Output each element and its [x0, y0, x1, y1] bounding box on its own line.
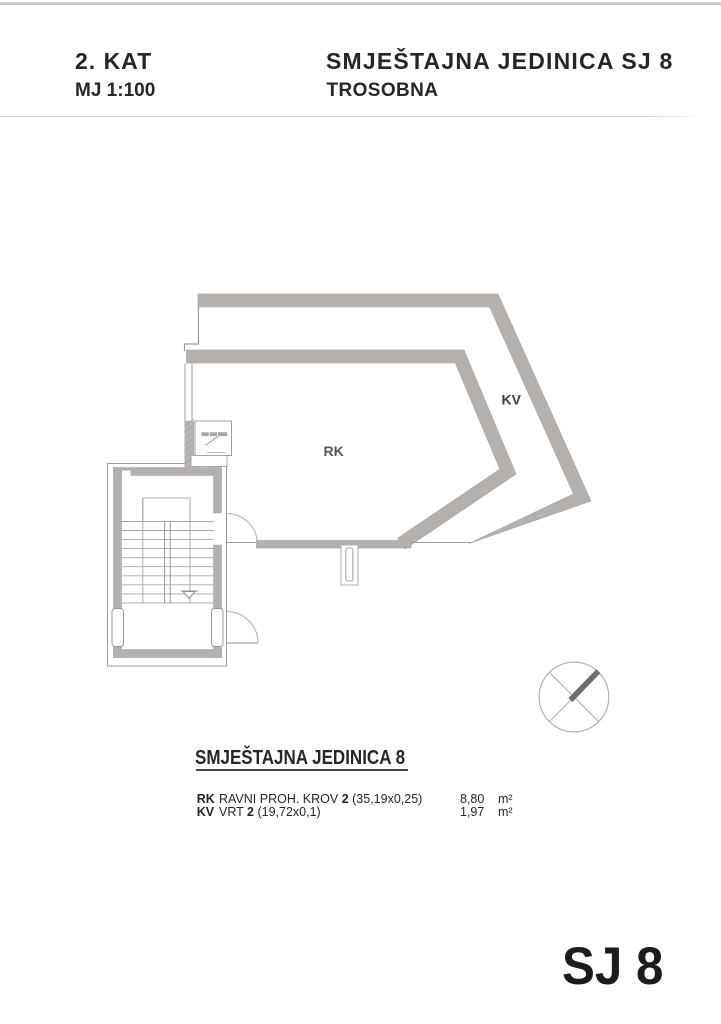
svg-text:RK: RK [324, 443, 344, 459]
svg-text:KV: KV [502, 392, 522, 408]
